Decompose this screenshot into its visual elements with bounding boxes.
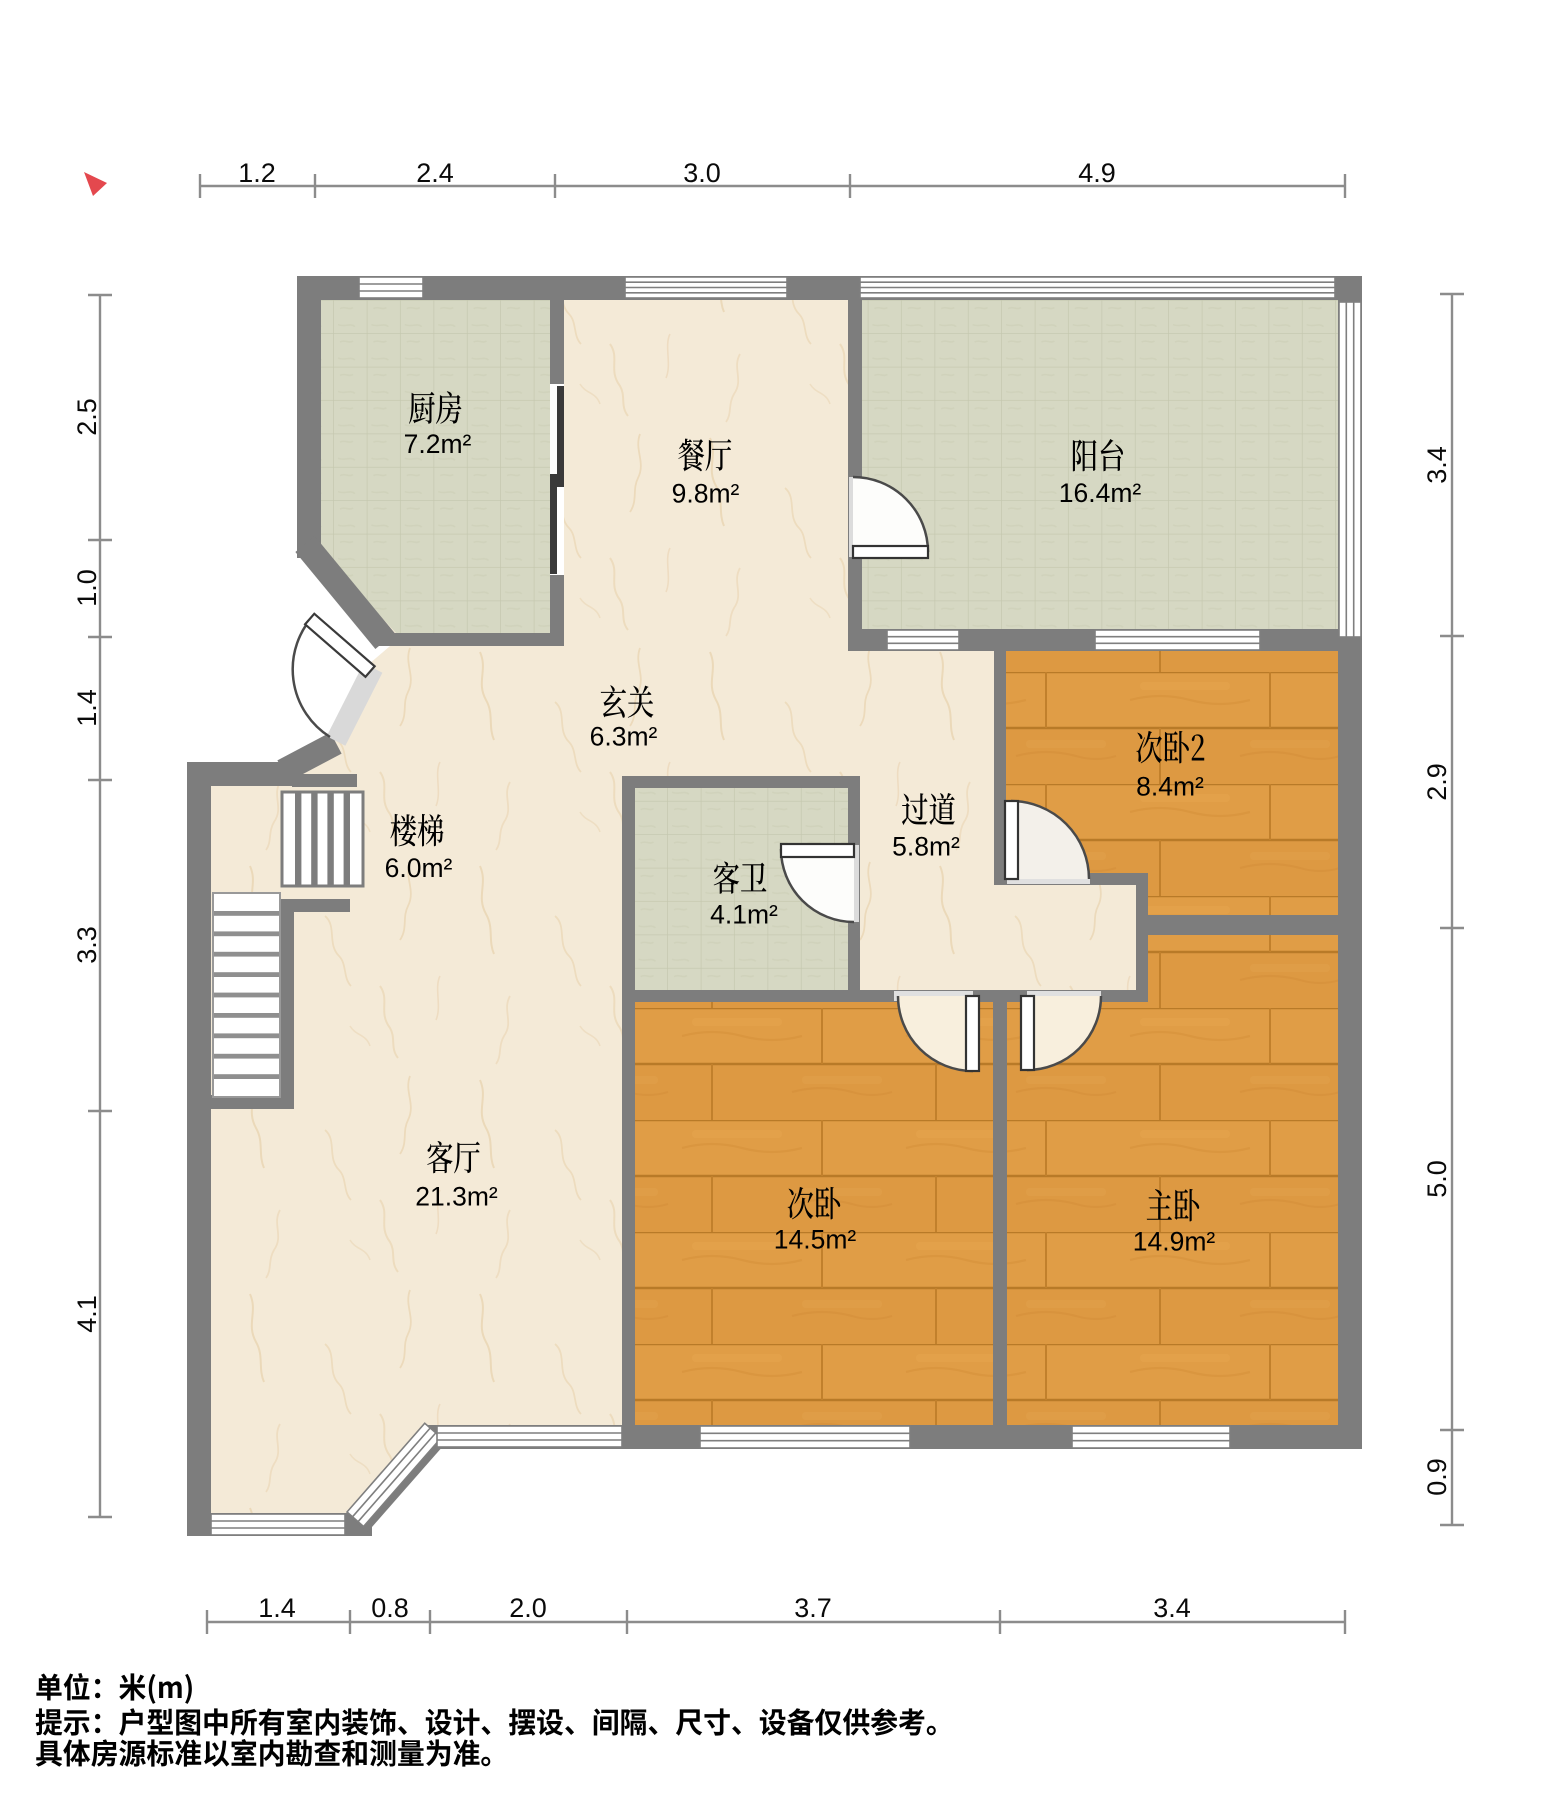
svg-text:8.4m²: 8.4m² [1136, 772, 1204, 802]
svg-text:5.8m²: 5.8m² [892, 832, 960, 862]
svg-text:3.7: 3.7 [794, 1593, 832, 1623]
svg-text:3.0: 3.0 [683, 158, 721, 188]
svg-text:3.4: 3.4 [1422, 446, 1452, 484]
svg-text:1.4: 1.4 [258, 1593, 296, 1623]
svg-text:6.0m²: 6.0m² [385, 853, 453, 883]
svg-text:2.4: 2.4 [416, 158, 454, 188]
svg-text:16.4m²: 16.4m² [1059, 478, 1142, 508]
svg-text:14.9m²: 14.9m² [1133, 1227, 1216, 1257]
svg-text:1.0: 1.0 [72, 569, 102, 607]
svg-text:0.9: 0.9 [1422, 1458, 1452, 1496]
svg-text:3.3: 3.3 [72, 926, 102, 964]
svg-text:1.2: 1.2 [238, 158, 276, 188]
svg-text:5.0: 5.0 [1422, 1160, 1452, 1198]
svg-text:3.4: 3.4 [1153, 1593, 1191, 1623]
svg-text:4.1: 4.1 [72, 1295, 102, 1333]
svg-text:0.8: 0.8 [371, 1593, 409, 1623]
svg-text:14.5m²: 14.5m² [774, 1225, 857, 1255]
svg-text:9.8m²: 9.8m² [672, 479, 740, 509]
svg-text:6.3m²: 6.3m² [590, 722, 658, 752]
svg-text:7.2m²: 7.2m² [404, 429, 472, 459]
svg-text:1.4: 1.4 [72, 689, 102, 727]
svg-text:4.1m²: 4.1m² [710, 900, 778, 930]
svg-text:2.5: 2.5 [72, 398, 102, 436]
svg-text:4.9: 4.9 [1078, 158, 1116, 188]
svg-text:2.9: 2.9 [1422, 763, 1452, 801]
svg-text:21.3m²: 21.3m² [415, 1182, 498, 1212]
svg-text:2.0: 2.0 [509, 1593, 547, 1623]
